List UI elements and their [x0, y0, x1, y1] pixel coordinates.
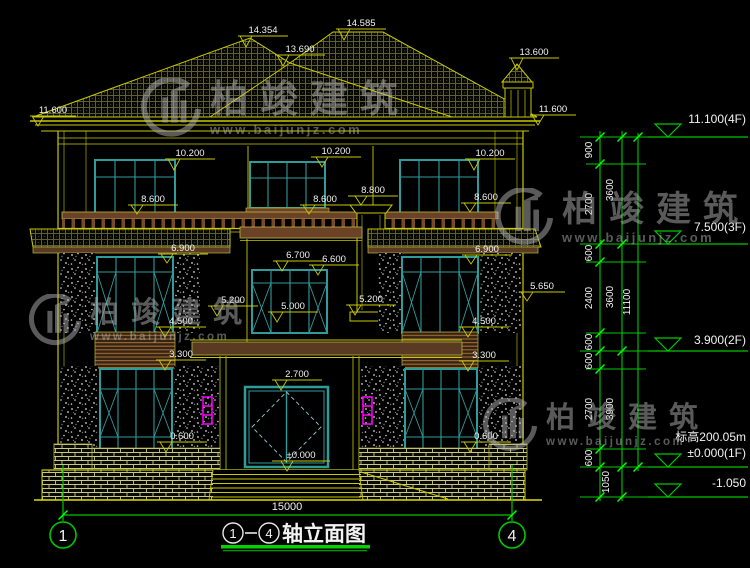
axis-bubble-1-label: 1 — [59, 528, 68, 545]
elevation-value: 11.600 — [539, 104, 567, 115]
elevation-marker: 10.200 — [311, 146, 361, 167]
elevation-value: 6.600 — [322, 254, 346, 265]
elevation-value: 5.000 — [281, 301, 305, 312]
elevation-value: 6.900 — [171, 243, 195, 254]
elevation-value: 4.500 — [169, 316, 193, 327]
elevation-marker: 6.600 — [309, 254, 359, 275]
dim-chain-value: 2700 — [584, 192, 595, 215]
level-marker: 标高200.05m±0.000(1F) — [648, 429, 748, 467]
window-1f-left — [100, 369, 172, 449]
elevation-value: 6.900 — [475, 244, 499, 255]
dim-chain-value: 600 — [584, 244, 595, 261]
dim-chain-value: 3600 — [605, 285, 616, 308]
elevation-value: 14.585 — [346, 18, 375, 29]
elevation-value: 0.600 — [170, 431, 194, 442]
elevation-value: 10.200 — [475, 148, 504, 159]
elevation-value: 13.600 — [519, 47, 548, 58]
building — [30, 32, 542, 500]
elevation-marker: 5.650 — [519, 281, 565, 301]
elevation-value: 13.690 — [285, 44, 314, 55]
dim-chain-value: 600 — [584, 333, 595, 350]
elevation-value: 10.200 — [175, 148, 204, 159]
window-1f-right — [405, 369, 477, 449]
level-value: 11.100(4F) — [688, 112, 746, 126]
elevation-marker: 8.600 — [461, 192, 511, 212]
elevation-value: 3.300 — [169, 349, 193, 360]
elevation-value: 8.800 — [361, 185, 385, 196]
level-marker: -1.050 — [648, 476, 748, 497]
window-2f-left — [97, 257, 173, 333]
title-underline-thin — [223, 550, 367, 551]
level-value: -1.050 — [712, 476, 746, 490]
elevation-value: 2.700 — [285, 369, 309, 380]
level-markers-layer: 11.100(4F)7.500(3F)3.900(2F)标高200.05m±0.… — [648, 112, 748, 497]
title-block: 1 4 轴立面图 — [221, 522, 370, 551]
title-axis-to: 4 — [265, 526, 272, 541]
awning-entry — [190, 340, 462, 358]
elevation-marker: 10.200 — [465, 148, 515, 170]
elevation-value: 14.354 — [248, 25, 277, 36]
elevation-value: 11.600 — [39, 105, 67, 116]
elevation-value: 8.600 — [474, 192, 498, 203]
overall-dimension-label: 15000 — [272, 501, 303, 513]
dim-chain-value: 900 — [584, 141, 595, 158]
dim-chain-value: 2400 — [584, 286, 595, 309]
dim-chain-value: 2700 — [584, 397, 595, 420]
slab-center — [240, 227, 362, 241]
elevation-value: ±0.000 — [287, 450, 316, 461]
window-3f-right — [400, 160, 478, 213]
level-value: 7.500(3F) — [694, 220, 746, 234]
dim-chain-value: 600 — [584, 352, 595, 369]
elevation-value: 8.600 — [313, 194, 337, 205]
dim-chain-value: 600 — [584, 449, 595, 466]
elevation-value: 10.200 — [321, 146, 350, 157]
title-underline-thick — [221, 545, 370, 549]
dim-chain-value: 1050 — [601, 470, 612, 493]
dim-chain-value: 3600 — [605, 178, 616, 201]
elevation-drawing: 1 4 15000 14.35414.58513.69013.60011.600… — [0, 0, 750, 568]
eave-2f-left — [30, 229, 230, 253]
elevation-marker: 11.600 — [530, 104, 576, 125]
level-marker: 3.900(2F) — [648, 333, 748, 351]
elevation-marker: 5.200 — [208, 295, 258, 316]
elevation-marker: 6.700 — [273, 250, 323, 271]
elevation-value: 6.700 — [286, 250, 310, 261]
elevation-value: 3.300 — [472, 350, 496, 361]
elevation-value: 5.200 — [359, 294, 383, 305]
axis-bubble-4-label: 4 — [508, 528, 517, 545]
elevation-marker: 5.000 — [268, 301, 318, 322]
elevation-value: 4.500 — [472, 316, 496, 327]
level-value: 3.900(2F) — [694, 333, 746, 347]
title-axis-from: 1 — [229, 526, 236, 541]
cad-canvas: 1 4 15000 14.35414.58513.69013.60011.600… — [0, 0, 750, 568]
louver-left — [95, 332, 175, 368]
elevation-value: 5.650 — [530, 281, 554, 292]
window-2f-right — [402, 257, 478, 333]
level-marker: 11.100(4F) — [648, 112, 748, 137]
dim-chain-value: 3900 — [605, 397, 616, 420]
level-marker: 7.500(3F) — [648, 220, 748, 244]
eave-2f-right — [368, 229, 541, 253]
dim-chain-value: 11100 — [622, 288, 633, 315]
drawing-title: 轴立面图 — [282, 522, 366, 546]
level-value: ±0.000(1F) — [687, 446, 746, 460]
chimney — [502, 64, 533, 117]
level-value: 标高200.05m — [675, 429, 746, 444]
elevation-value: 0.600 — [474, 431, 498, 442]
elevation-value: 8.600 — [141, 194, 165, 205]
elevation-value: 5.200 — [221, 295, 245, 306]
elevation-marker: 10.200 — [165, 148, 215, 170]
